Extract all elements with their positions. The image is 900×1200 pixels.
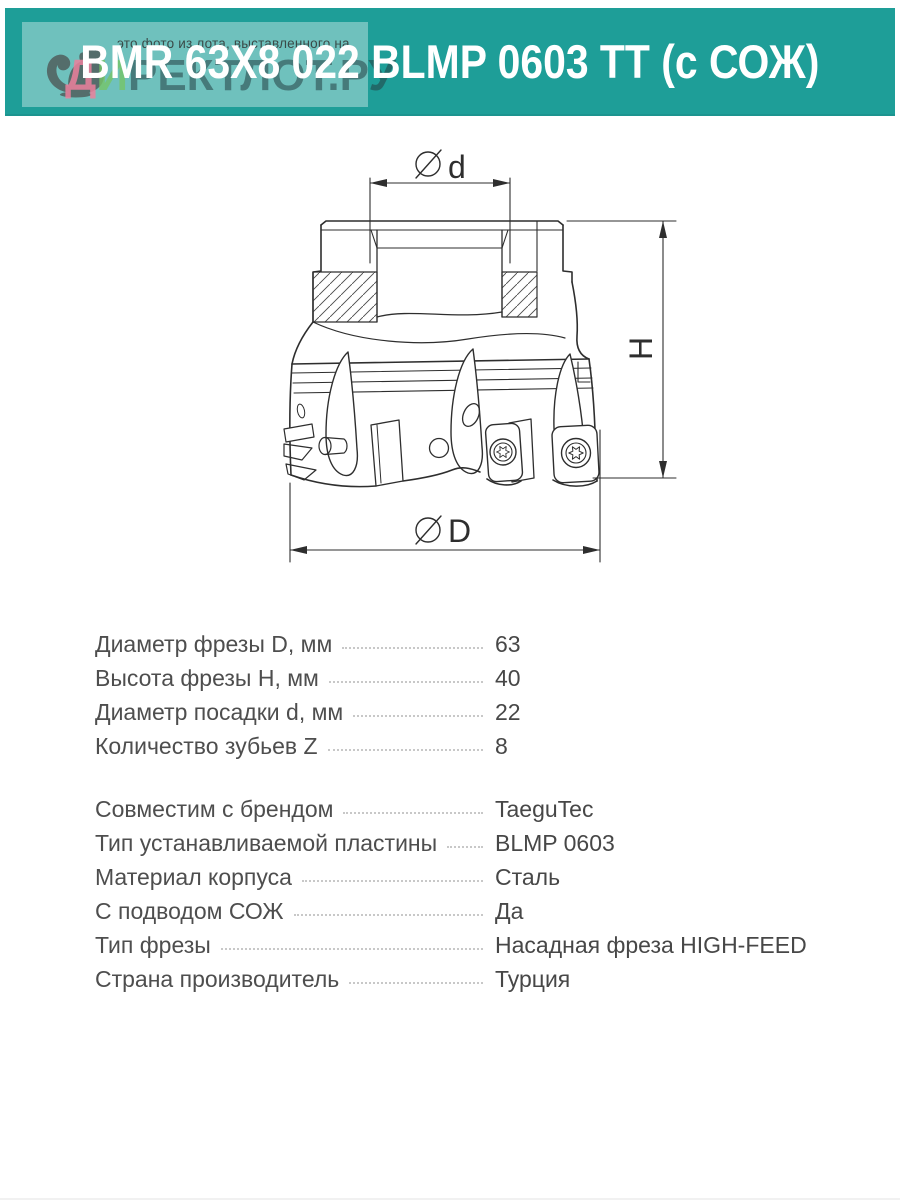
cutter-body bbox=[284, 221, 599, 487]
dotted-leader bbox=[447, 846, 483, 848]
insert-b bbox=[552, 425, 600, 483]
dotted-leader bbox=[221, 948, 483, 950]
spec-label: Тип устанавливаемой пластины bbox=[95, 830, 437, 857]
spec-row: Совместим с брендом TaeguTec bbox=[95, 792, 810, 826]
insert-a bbox=[485, 423, 523, 482]
dotted-leader bbox=[349, 982, 483, 984]
dim-letter-D: D bbox=[448, 513, 471, 549]
spec-value: Да bbox=[495, 898, 523, 925]
spec-row: Тип устанавливаемой пластины BLMP 0603 bbox=[95, 826, 810, 860]
dotted-leader bbox=[302, 880, 483, 882]
spec-label: Совместим с брендом bbox=[95, 796, 333, 823]
spec-value: TaeguTec bbox=[495, 796, 593, 823]
technical-drawing: d bbox=[0, 130, 900, 610]
spec-value: 8 bbox=[495, 733, 508, 760]
spec-label: Диаметр фрезы D, мм bbox=[95, 631, 332, 658]
spec-value: BLMP 0603 bbox=[495, 830, 615, 857]
spec-value: Сталь bbox=[495, 864, 560, 891]
spec-row: Высота фрезы H, мм 40 bbox=[95, 661, 810, 695]
spec-label: Материал корпуса bbox=[95, 864, 292, 891]
spec-row: Диаметр фрезы D, мм 63 bbox=[95, 627, 810, 661]
spec-row: Количество зубьев Z 8 bbox=[95, 729, 810, 763]
dotted-leader bbox=[342, 647, 483, 649]
spec-table: Диаметр фрезы D, мм 63 Высота фрезы H, м… bbox=[95, 627, 810, 996]
spec-block-properties: Совместим с брендом TaeguTec Тип устанав… bbox=[95, 792, 810, 996]
spec-value: 40 bbox=[495, 665, 521, 692]
dotted-leader bbox=[328, 749, 483, 751]
spec-label: Диаметр посадки d, мм bbox=[95, 699, 343, 726]
spec-row: Страна производитель Турция bbox=[95, 962, 810, 996]
spec-row: Материал корпуса Сталь bbox=[95, 860, 810, 894]
dotted-leader bbox=[343, 812, 483, 814]
spec-row: Тип фрезы Насадная фреза HIGH-FEED bbox=[95, 928, 810, 962]
spec-value: Насадная фреза HIGH-FEED bbox=[495, 932, 807, 959]
dim-letter-d: d bbox=[448, 149, 466, 185]
header-band: ДИРЕКТЛОТ.РУ это фото из лота, выставлен… bbox=[5, 8, 895, 116]
spec-row: Диаметр посадки d, мм 22 bbox=[95, 695, 810, 729]
dim-letter-h: H bbox=[623, 337, 659, 360]
spec-label: Страна производитель bbox=[95, 966, 339, 993]
spec-label: Количество зубьев Z bbox=[95, 733, 318, 760]
spec-label: Высота фрезы H, мм bbox=[95, 665, 319, 692]
spec-row: С подводом СОЖ Да bbox=[95, 894, 810, 928]
dotted-leader bbox=[294, 914, 483, 916]
product-spec-page: ДИРЕКТЛОТ.РУ это фото из лота, выставлен… bbox=[0, 0, 900, 1200]
spec-label: С подводом СОЖ bbox=[95, 898, 284, 925]
spec-value: 63 bbox=[495, 631, 521, 658]
spec-block-dimensions: Диаметр фрезы D, мм 63 Высота фрезы H, м… bbox=[95, 627, 810, 763]
spec-value: 22 bbox=[495, 699, 521, 726]
spec-label: Тип фрезы bbox=[95, 932, 211, 959]
spec-value: Турция bbox=[495, 966, 570, 993]
dotted-leader bbox=[353, 715, 483, 717]
dotted-leader bbox=[329, 681, 483, 683]
page-title: BMR 63X8 022 BLMP 0603 TT (с СОЖ) bbox=[5, 36, 895, 88]
dimension-top-d: d bbox=[370, 149, 510, 263]
